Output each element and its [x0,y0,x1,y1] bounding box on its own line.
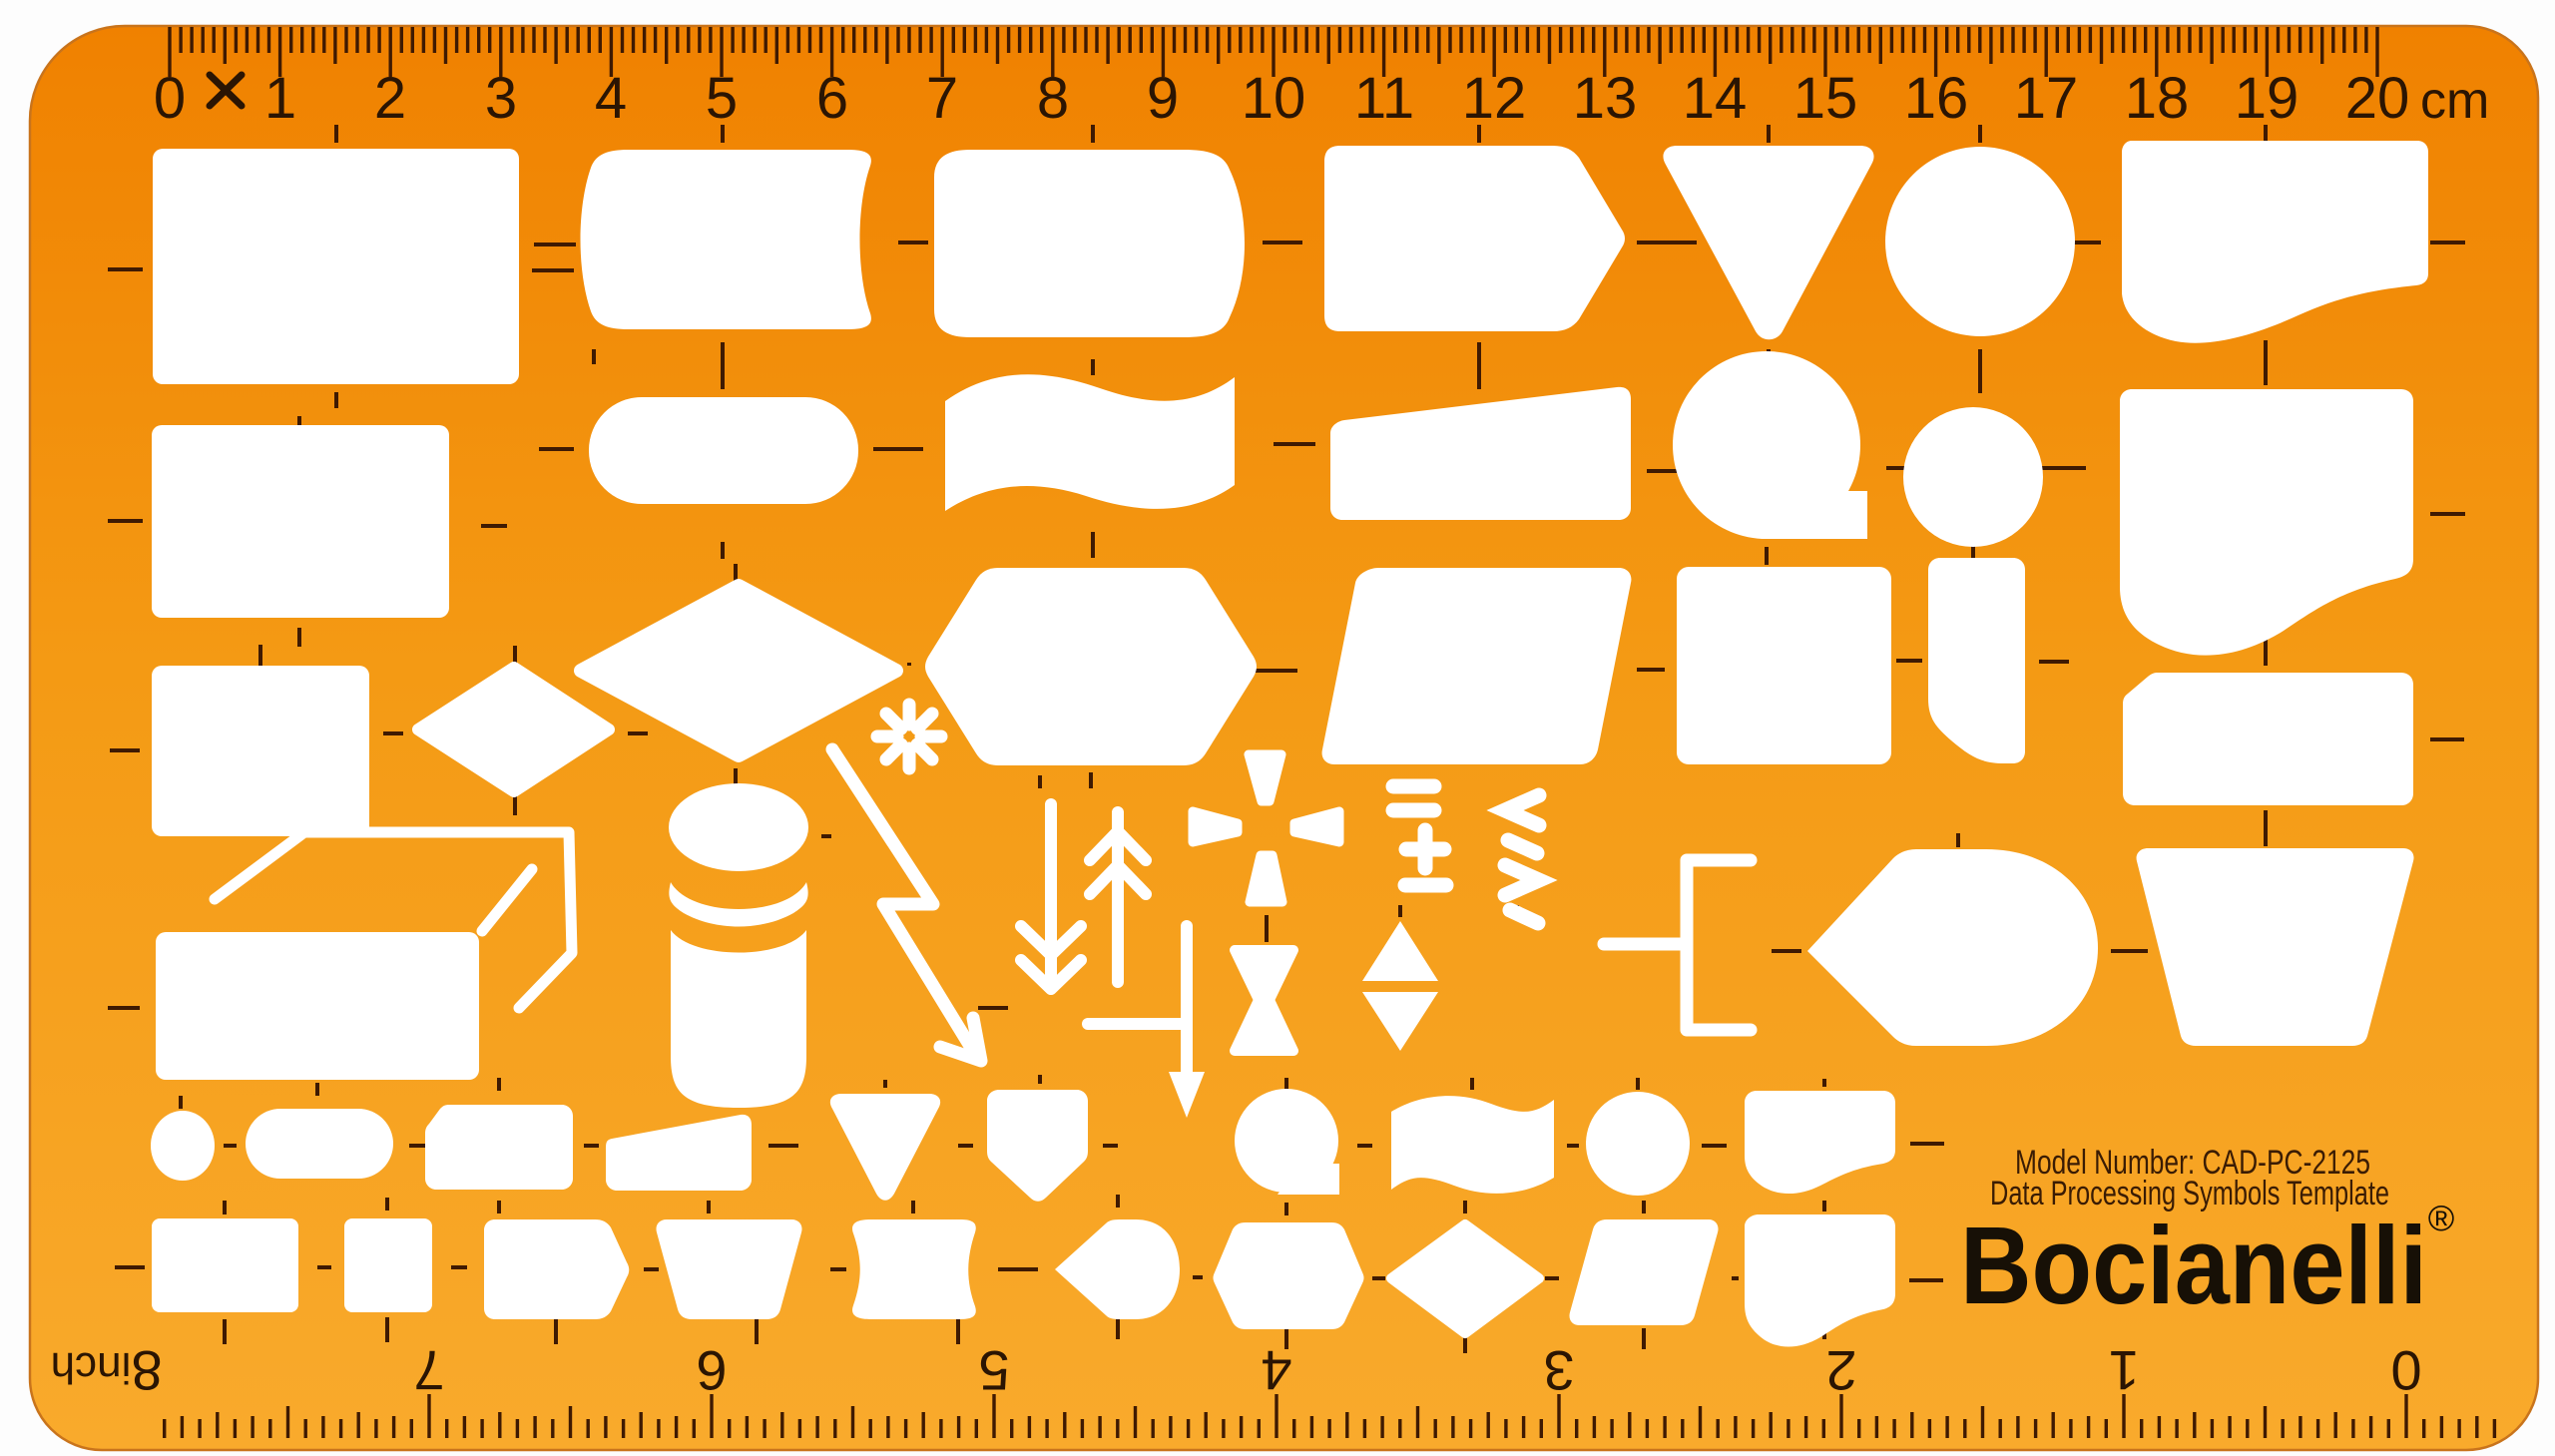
svg-text:12: 12 [1462,66,1527,131]
svg-text:5: 5 [978,1339,1009,1402]
svg-text:®: ® [2428,1198,2455,1238]
svg-text:10: 10 [1242,66,1306,131]
svg-text:2: 2 [1825,1339,1856,1402]
svg-text:6: 6 [816,66,848,131]
svg-text:1: 1 [2108,1339,2139,1402]
svg-text:19: 19 [2235,66,2299,131]
svg-text:cm: cm [2420,72,2489,130]
svg-text:9: 9 [1147,66,1179,131]
svg-text:16: 16 [1904,66,1969,131]
svg-text:2: 2 [374,66,406,131]
svg-text:20: 20 [2345,66,2410,131]
svg-text:3: 3 [1543,1339,1574,1402]
svg-text:13: 13 [1573,66,1638,131]
svg-text:6: 6 [696,1339,727,1402]
svg-text:1: 1 [264,66,296,131]
svg-text:Bocianelli: Bocianelli [1960,1205,2427,1327]
svg-text:7: 7 [413,1339,444,1402]
svg-text:8: 8 [131,1339,162,1402]
svg-text:0: 0 [154,66,186,131]
svg-text:18: 18 [2125,66,2190,131]
svg-text:5: 5 [706,66,738,131]
svg-text:17: 17 [2014,66,2079,131]
svg-text:4: 4 [595,66,627,131]
svg-text:7: 7 [926,66,958,131]
svg-text:inch: inch [51,1343,132,1392]
svg-text:11: 11 [1354,66,1414,131]
svg-text:14: 14 [1683,66,1748,131]
svg-text:0: 0 [2390,1339,2421,1402]
svg-text:3: 3 [485,66,517,131]
svg-text:8: 8 [1037,66,1069,131]
svg-text:15: 15 [1793,66,1858,131]
